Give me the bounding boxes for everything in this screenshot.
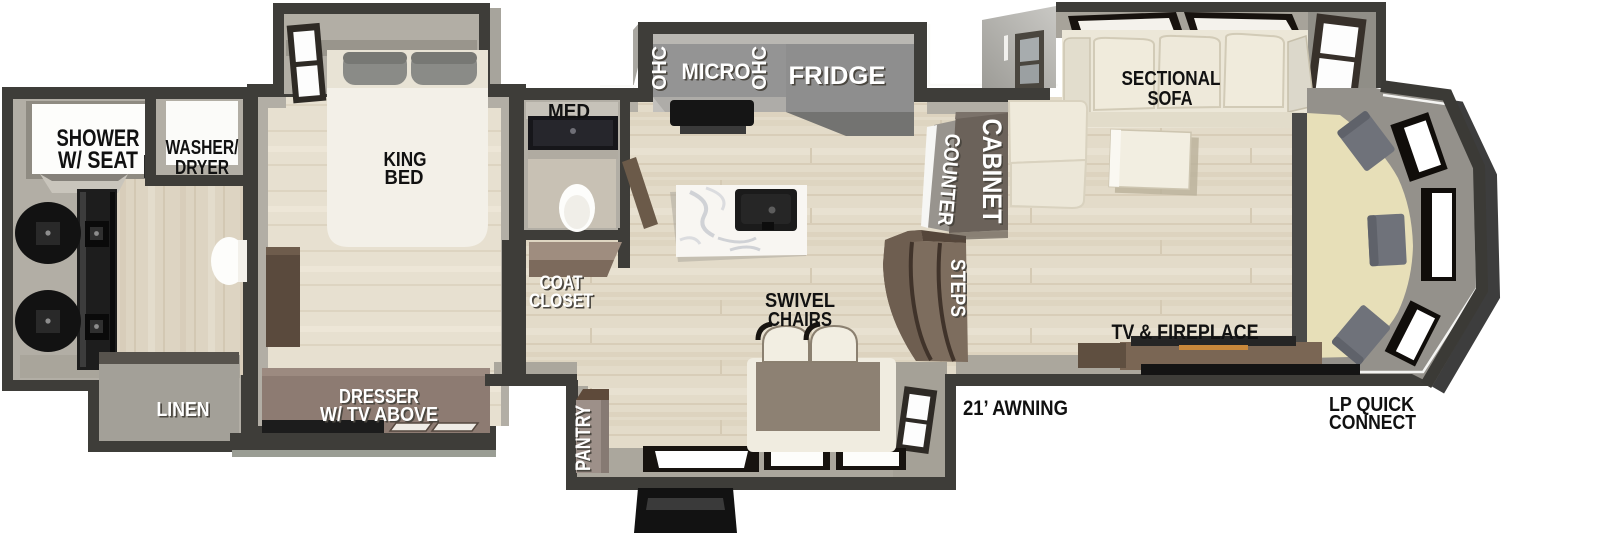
svg-text:TV & FIREPLACE: TV & FIREPLACE (1112, 321, 1259, 344)
svg-text:DRYER: DRYER (175, 157, 229, 179)
svg-text:BED: BED (385, 167, 424, 189)
svg-text:PANTRY: PANTRY (572, 405, 595, 471)
svg-text:SECTIONAL: SECTIONAL (1122, 68, 1221, 90)
svg-text:CLOSET: CLOSET (529, 291, 593, 312)
svg-text:FRIDGE: FRIDGE (789, 62, 886, 90)
svg-text:W/ SEAT: W/ SEAT (58, 147, 138, 174)
svg-text:OHC: OHC (649, 46, 671, 90)
svg-text:MED: MED (548, 101, 590, 123)
svg-text:CHAIRS: CHAIRS (768, 309, 832, 331)
svg-text:21’ AWNING: 21’ AWNING (963, 397, 1068, 420)
svg-text:OHC: OHC (749, 46, 771, 90)
svg-text:SOFA: SOFA (1148, 88, 1193, 110)
svg-text:STEPS: STEPS (946, 259, 969, 317)
svg-text:CABINET: CABINET (977, 119, 1007, 224)
svg-text:CONNECT: CONNECT (1329, 412, 1416, 434)
svg-text:LINEN: LINEN (157, 399, 210, 421)
svg-text:W/ TV ABOVE: W/ TV ABOVE (320, 404, 438, 426)
svg-text:WASHER/: WASHER/ (166, 137, 239, 159)
svg-text:MICRO: MICRO (682, 59, 751, 84)
